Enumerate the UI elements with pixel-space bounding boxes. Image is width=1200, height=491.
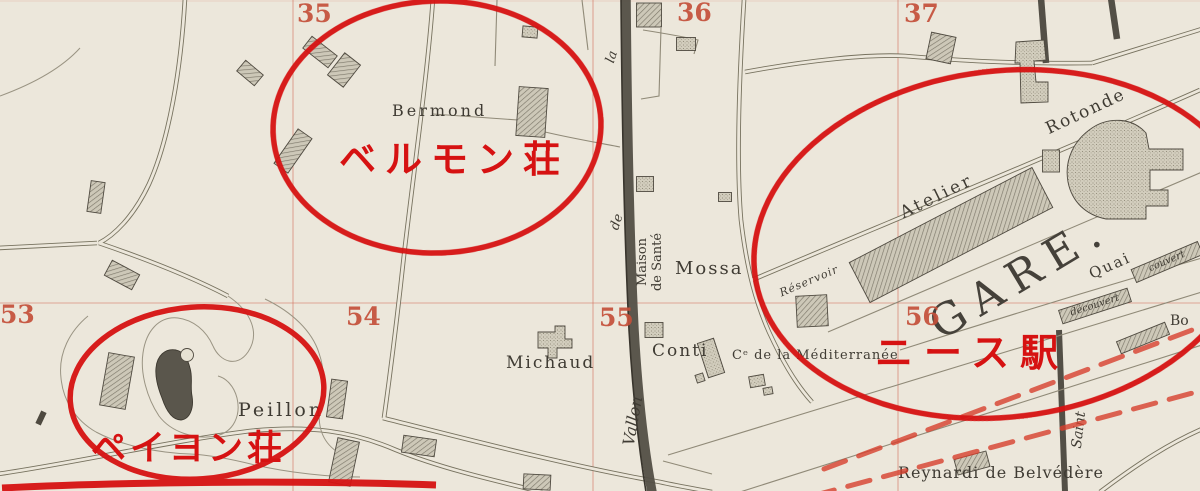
- jp-label-nice-station: ニース駅: [875, 334, 1069, 372]
- historical-map-canvas: Bermond Michaud Conti Cᵉ de la Méditerra…: [0, 0, 1200, 491]
- railway-dashed-line-lower: [812, 391, 1200, 491]
- annotation-ellipse-nice-station: [734, 42, 1200, 446]
- jp-label-bermond-villa: ベルモン荘: [339, 141, 569, 178]
- annotation-layer: [0, 0, 1200, 491]
- annotation-ellipse-bermond-villa: [269, 0, 606, 259]
- annotation-underline-stroke: [2, 482, 436, 488]
- jp-label-peillon-villa: ペイヨン荘: [91, 432, 286, 467]
